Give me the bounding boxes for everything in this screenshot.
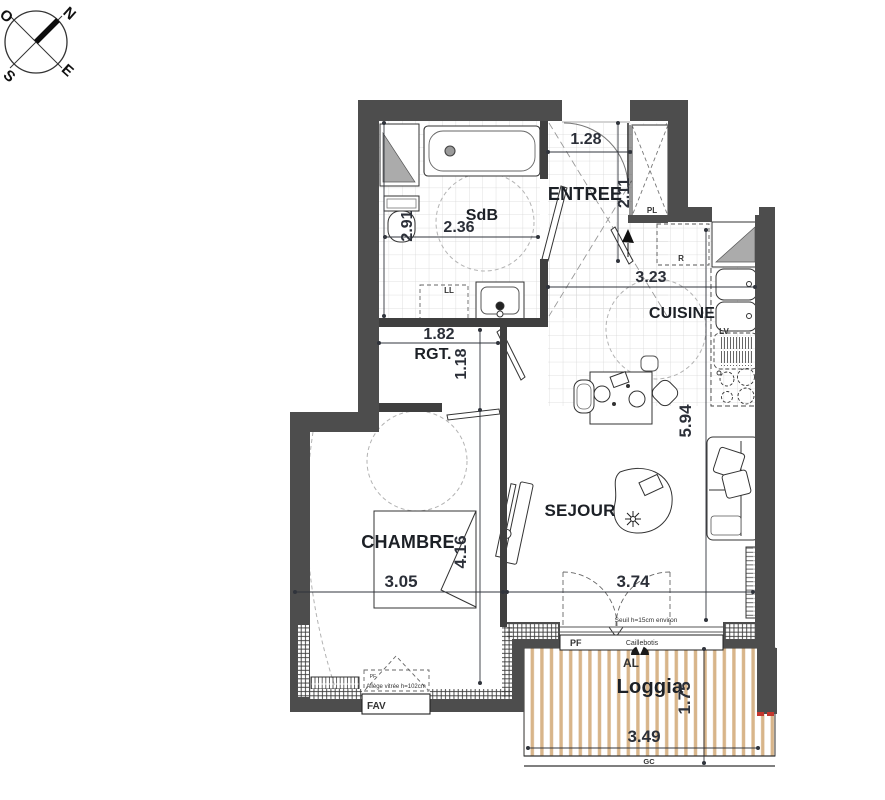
rgt-label: RGT. — [414, 346, 451, 363]
dishwasher-lv-label: LV — [719, 327, 729, 336]
sdb-entree-partition-upper — [540, 121, 548, 179]
coffee-table — [614, 468, 672, 533]
pf-label: PF — [570, 638, 582, 648]
fridge-r-label: R — [678, 254, 684, 263]
plant-icon — [625, 511, 641, 527]
chambre-turning-circle — [367, 411, 467, 511]
rgt-right-partition — [500, 327, 507, 412]
kitchen-window — [712, 222, 759, 267]
cuisine-label: CUISINE — [649, 305, 715, 322]
bathtub — [424, 126, 540, 176]
dim-rgt-width: 1.82 — [423, 326, 454, 343]
right-wall — [755, 215, 775, 648]
sejour-label: SEJOUR — [544, 501, 615, 520]
sdb-entree-partition-lower — [540, 259, 548, 327]
closet-pl — [630, 125, 668, 216]
floor-plan-drawing: N O S E — [0, 0, 885, 800]
compass-rose-icon: N O S E — [0, 4, 79, 86]
pl-bottom-stub — [628, 215, 668, 223]
al-label: AL — [623, 656, 639, 670]
dim-sejour-width: 3.74 — [616, 572, 650, 591]
dim-sejour-depth: 5.94 — [676, 404, 695, 438]
chambre-top-partition — [379, 403, 442, 412]
seuil-note: Seuil h=15cm environ — [615, 617, 678, 624]
dim-loggia-width: 3.49 — [627, 727, 660, 746]
compass-east-label: E — [58, 61, 77, 80]
allege-note: Allège vitrée h=102cm — [366, 684, 426, 690]
closet-pl-label: PL — [647, 206, 657, 215]
dishwasher — [714, 333, 758, 369]
loggia-label: Loggia — [617, 676, 684, 698]
chambre-clearance-arc — [307, 432, 337, 693]
fav-label: FAV — [367, 701, 386, 712]
gc-label: GC — [643, 757, 655, 766]
caillebotis-label: Caillebotis — [626, 640, 659, 647]
sdb-window — [380, 124, 419, 186]
compass-south-label: S — [0, 67, 18, 86]
sdb-bottom-partition — [379, 318, 540, 327]
chambre-sejour-partition — [500, 412, 507, 627]
entree-label: ENTREE — [548, 184, 622, 204]
floor-plan: N O S E — [0, 0, 885, 800]
top-wall-left — [358, 100, 562, 121]
sofa — [707, 437, 759, 540]
dim-entree-depth: 2.11 — [616, 178, 633, 208]
chambre-door-leaf — [447, 409, 500, 420]
washer-ll-label: LL — [444, 286, 454, 295]
right-wall-upper — [668, 100, 688, 215]
dim-chambre-width: 3.05 — [384, 572, 417, 591]
compass-north-label: N — [60, 4, 79, 24]
chambre-label: CHAMBRE — [361, 532, 454, 552]
dim-chambre-depth: 4.16 — [451, 535, 470, 568]
compass-west-label: O — [0, 6, 16, 27]
pf-small-label: PF — [370, 674, 376, 680]
left-wall-upper — [358, 100, 379, 412]
dim-cuisine-width: 3.23 — [635, 269, 666, 286]
dim-rgt-depth: 1.18 — [453, 348, 470, 379]
north-needle — [36, 20, 58, 42]
kitchen-top-wall-a — [668, 207, 712, 222]
dim-entree-width: 1.28 — [570, 131, 601, 148]
chambre-loggia-divider — [512, 627, 524, 712]
dim-sdb-depth: 2.91 — [399, 210, 416, 241]
chambre-radiator — [311, 677, 359, 689]
dim-sdb-width: 2.36 — [443, 219, 474, 236]
dim-loggia-depth: 1.75 — [675, 681, 694, 714]
loggia-right-wall — [757, 648, 777, 714]
bathroom-sink — [476, 282, 524, 319]
kitchen-sink — [716, 269, 757, 331]
